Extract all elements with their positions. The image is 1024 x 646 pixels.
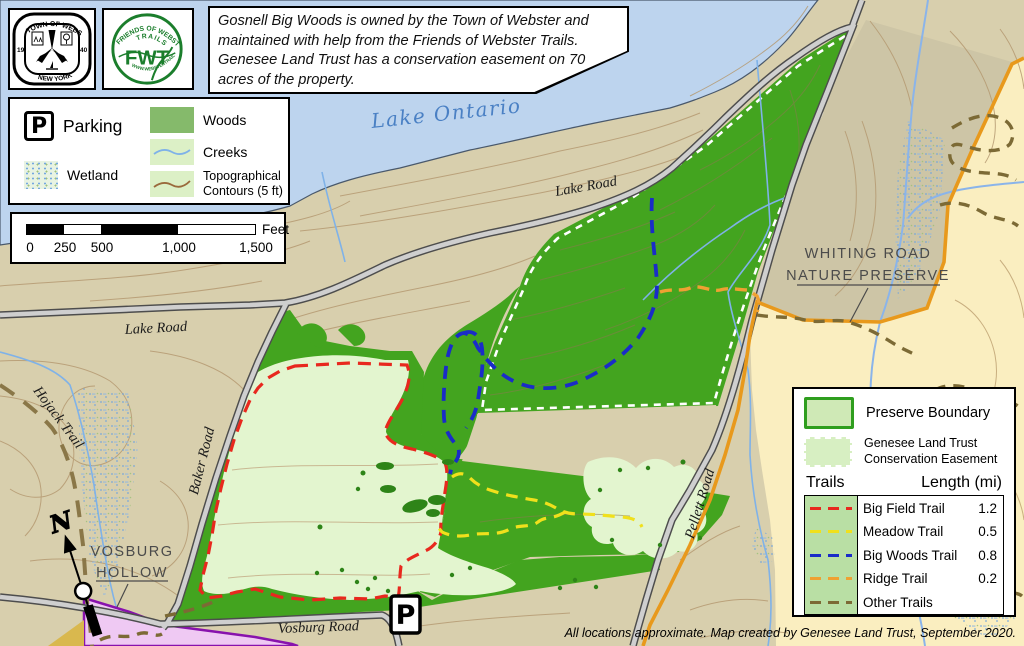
table-row: Ridge Trail 0.2	[858, 567, 1003, 591]
trails-table: Big Field Trail 1.2 Meadow Trail 0.5 Big…	[804, 495, 1004, 615]
town-of-webster-logo: TOWN OF WEBSTER NEW YORK 19 40	[8, 8, 96, 90]
woods-label: Woods	[203, 112, 246, 128]
wetland-label: Wetland	[67, 167, 118, 183]
info-text: Gosnell Big Woods is owned by the Town o…	[218, 12, 610, 90]
vosburg-road-label: Vosburg Road	[278, 618, 360, 637]
table-row: Big Field Trail 1.2	[858, 496, 1003, 520]
scale-tick: 1,500	[239, 240, 273, 255]
table-row: Big Woods Trail 0.8	[858, 543, 1003, 567]
topo-label: Topographical Contours (5 ft)	[203, 169, 298, 199]
wetland-swatch-icon	[24, 161, 58, 189]
town-seal-icon: TOWN OF WEBSTER NEW YORK 19 40	[10, 10, 94, 88]
scale-tick: 500	[91, 240, 114, 255]
easement-label-line1: Genesee Land Trust	[864, 436, 977, 450]
trail-name: Ridge Trail	[858, 571, 978, 586]
big-woods-trail-dash-icon	[810, 554, 852, 557]
table-row: Other Trails	[858, 590, 1003, 614]
preserve-boundary-swatch-icon	[804, 397, 854, 429]
seal-year-right: 40	[80, 47, 88, 54]
fwt-badge-icon: FRIENDS OF WEBSTER TRAILS FWT WWW.WEBSTE…	[104, 10, 190, 88]
scale-tick: 0	[26, 240, 34, 255]
whiting-label-line2: NATURE PRESERVE	[786, 268, 950, 284]
seal-year-left: 19	[17, 47, 25, 54]
scale-unit-label: Feet	[262, 222, 289, 237]
parking-label: Parking	[63, 116, 122, 137]
woods-swatch-icon	[150, 107, 194, 133]
seal-star-icon	[36, 30, 68, 63]
trail-dash-column	[805, 496, 858, 614]
trails-column-header: Trails	[806, 474, 845, 492]
trail-map-page: Lake Ontario Lake Road Lake Road Baker R…	[0, 0, 1024, 646]
trail-length: 0.8	[978, 548, 1003, 563]
trail-length: 1.2	[978, 501, 1003, 516]
trail-name: Meadow Trail	[858, 524, 978, 539]
whiting-label-line1: WHITING ROAD	[805, 246, 932, 262]
vosburg-hollow-label-line2: HOLLOW	[96, 565, 168, 581]
preserve-boundary-label: Preserve Boundary	[866, 405, 990, 421]
big-field-trail-dash-icon	[810, 507, 852, 510]
easement-label-line2: Conservation Easement	[864, 452, 997, 466]
map-parking-letter: P	[396, 600, 416, 631]
vosburg-hollow-label-line1: VOSBURG	[90, 544, 173, 560]
easement-swatch-icon	[804, 437, 852, 467]
parking-icon: P	[24, 111, 54, 141]
trail-length: 0.2	[978, 571, 1003, 586]
topo-swatch-icon	[150, 171, 194, 197]
meadow-patch	[583, 457, 706, 558]
creeks-swatch-icon	[150, 139, 194, 165]
other-trails-dash-icon	[810, 601, 852, 604]
lake-road-west-label: Lake Road	[123, 319, 188, 338]
trail-length: 0.5	[978, 524, 1003, 539]
length-column-header: Length (mi)	[921, 474, 1002, 492]
trail-name: Big Woods Trail	[858, 548, 978, 563]
easement-label: Genesee Land Trust Conservation Easement	[864, 436, 997, 467]
scale-bar: Feet 0 250 500 1,000 1,500	[10, 212, 286, 264]
ridge-trail-dash-icon	[810, 577, 852, 580]
meadow-trail-dash-icon	[810, 530, 852, 533]
boundary-trails-legend: Preserve Boundary Genesee Land Trust Con…	[792, 387, 1016, 617]
legend-box: P Parking Wetland Woods Creeks Topograph…	[8, 97, 290, 205]
trail-name: Other Trails	[858, 595, 997, 610]
attribution-text: All locations approximate. Map created b…	[564, 626, 1016, 640]
scale-tick: 1,000	[162, 240, 196, 255]
table-row: Meadow Trail 0.5	[858, 520, 1003, 544]
scale-bar-segments	[26, 224, 256, 235]
creeks-label: Creeks	[203, 144, 247, 160]
map-parking-icon: P	[391, 596, 420, 633]
trail-name: Big Field Trail	[858, 501, 978, 516]
scale-tick: 250	[54, 240, 77, 255]
friends-of-webster-trails-logo: FRIENDS OF WEBSTER TRAILS FWT WWW.WEBSTE…	[102, 8, 194, 90]
